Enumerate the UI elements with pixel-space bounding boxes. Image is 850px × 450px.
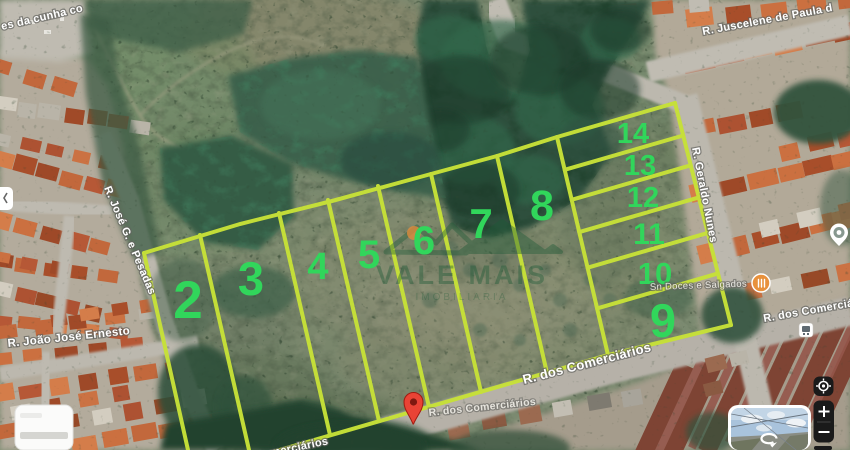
svg-text:3: 3 — [238, 252, 264, 305]
svg-text:14: 14 — [617, 118, 649, 150]
svg-text:13: 13 — [624, 150, 656, 182]
svg-text:6: 6 — [413, 219, 435, 263]
svg-text:7: 7 — [469, 200, 492, 247]
svg-text:5: 5 — [358, 233, 380, 277]
svg-text:4: 4 — [307, 246, 328, 288]
svg-text:8: 8 — [530, 182, 554, 230]
svg-text:9: 9 — [650, 294, 676, 347]
svg-text:VALE MAIS: VALE MAIS — [376, 260, 548, 290]
svg-text:12: 12 — [627, 182, 659, 214]
svg-text:IMOBILIARIA: IMOBILIARIA — [415, 292, 508, 303]
svg-text:11: 11 — [633, 218, 665, 251]
svg-text:2: 2 — [173, 271, 202, 330]
